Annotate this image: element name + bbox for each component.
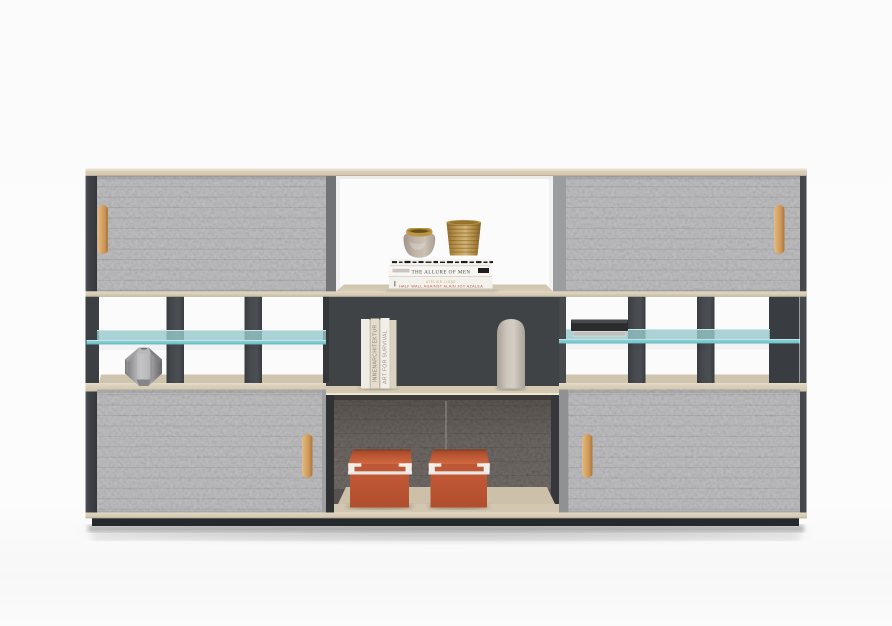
svg-text:ATELIER LIGNE: ATELIER LIGNE — [426, 280, 456, 284]
svg-text:THE ALLURE OF MEN: THE ALLURE OF MEN — [411, 269, 470, 275]
svg-text:ART FOR SURVIVAL: ART FOR SURVIVAL — [382, 330, 388, 384]
svg-text:INNENARCHITEKTUR: INNENARCHITEKTUR — [373, 324, 379, 382]
svg-text:HALF WALL AGAINST ALAIN JOY AZ: HALF WALL AGAINST ALAIN JOY AZALEA — [399, 285, 483, 289]
